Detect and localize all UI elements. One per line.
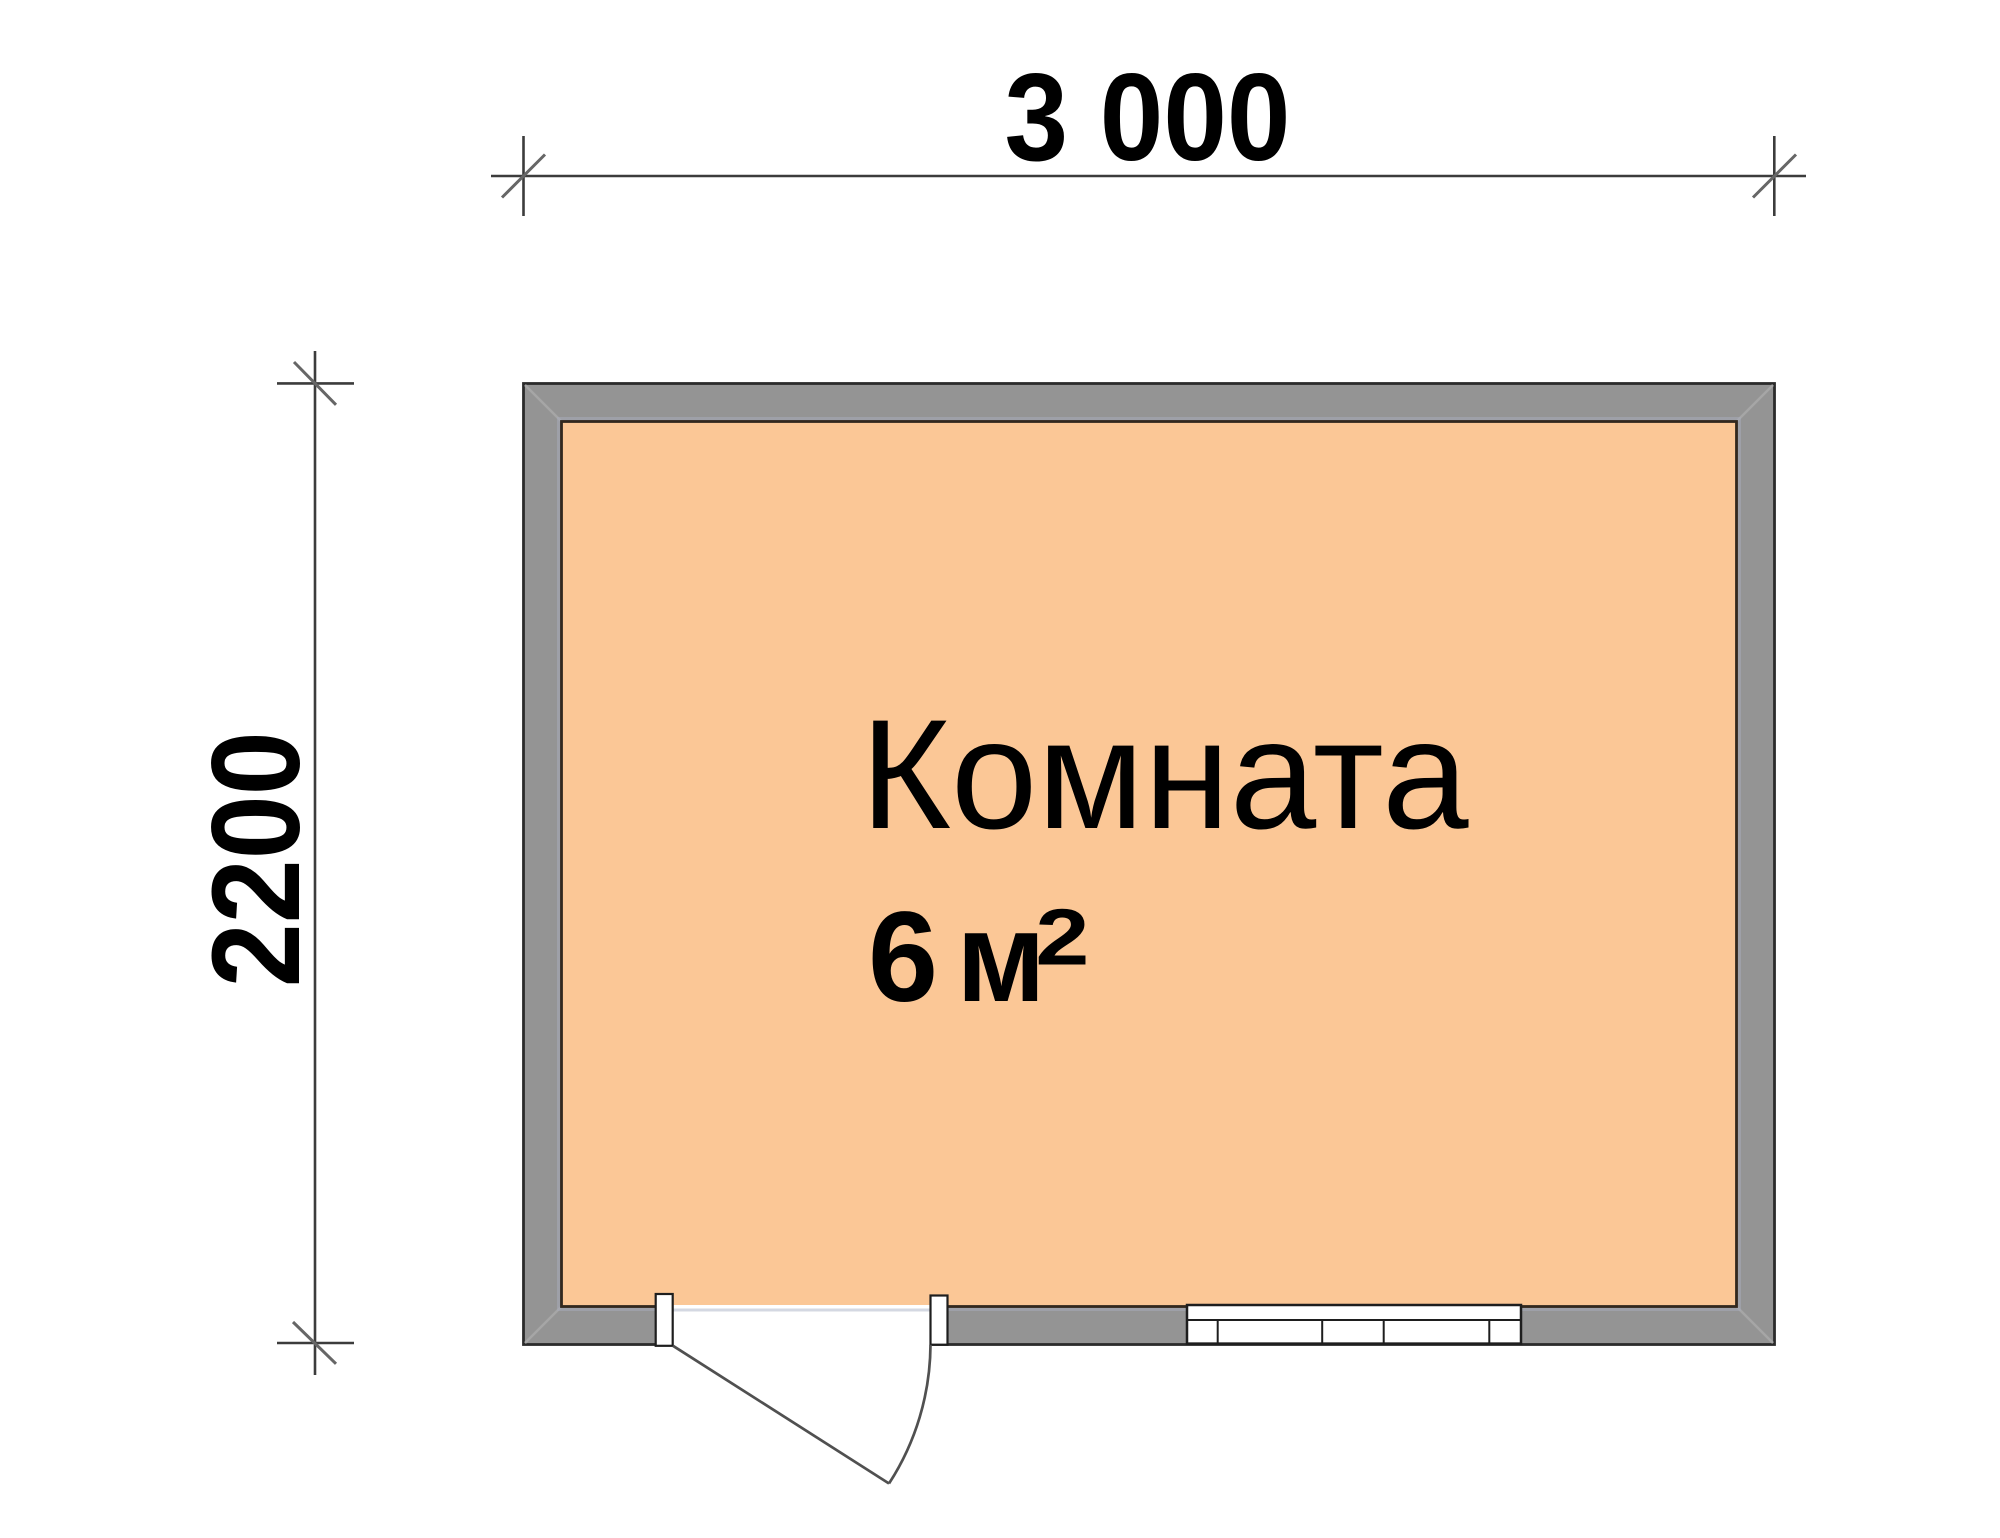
svg-text:2200: 2200 [187, 731, 326, 987]
svg-text:2: 2 [1035, 893, 1089, 982]
svg-text:Комната: Комната [861, 688, 1469, 862]
svg-text:3 000: 3 000 [1005, 49, 1291, 187]
svg-text:6: 6 [868, 886, 938, 1029]
svg-text:м: м [957, 886, 1046, 1029]
